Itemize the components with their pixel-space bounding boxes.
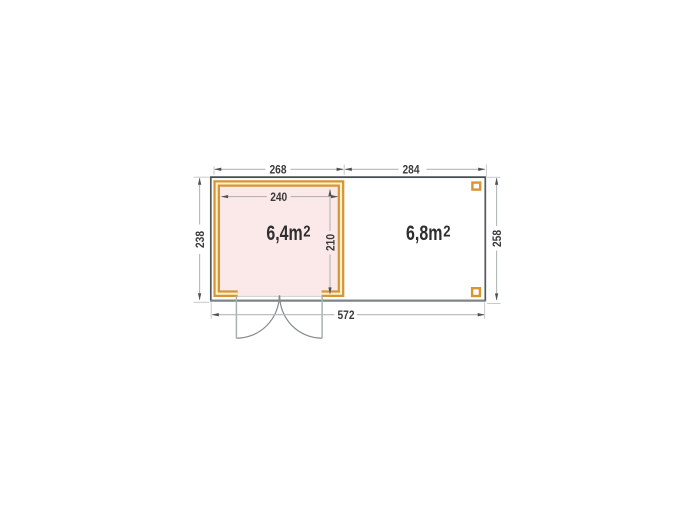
- svg-text:240: 240: [270, 190, 287, 204]
- svg-text:238: 238: [193, 231, 207, 248]
- svg-text:258: 258: [490, 230, 504, 247]
- svg-text:2: 2: [443, 224, 450, 241]
- svg-text:6,8m: 6,8m: [406, 220, 442, 245]
- svg-text:268: 268: [270, 162, 287, 176]
- svg-text:2: 2: [303, 224, 310, 241]
- svg-text:210: 210: [323, 234, 337, 251]
- svg-text:572: 572: [338, 308, 355, 322]
- svg-text:284: 284: [403, 162, 420, 176]
- svg-text:6,4m: 6,4m: [266, 220, 302, 245]
